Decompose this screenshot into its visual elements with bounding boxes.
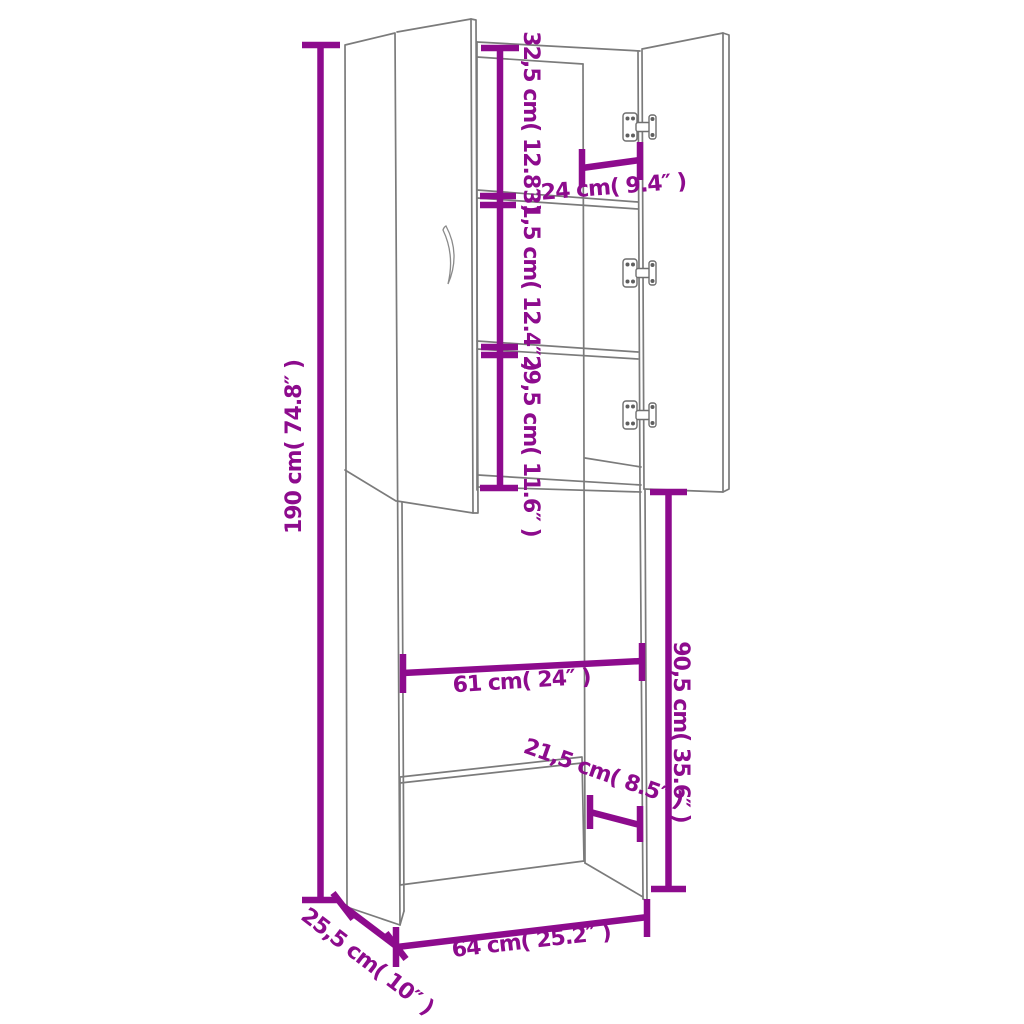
cabinet-drawing: 190 cm( 74.8″ ) 32,5 cm( 12.8″ ) 31,5 cm… — [0, 0, 1024, 1024]
shelf-spacing-dimension-line — [480, 48, 519, 488]
hinge-top-icon — [623, 113, 656, 141]
middle-shelf-section-label: 31,5 cm( 12.4″ ) — [518, 189, 543, 370]
door-handle — [443, 226, 454, 284]
overall-width-label: 64 cm( 25.2″ ) — [450, 920, 612, 963]
overall-height-label: 190 cm( 74.8″ ) — [282, 360, 307, 534]
plinth-offset-dimension-line — [590, 795, 640, 842]
dimension-labels: 190 cm( 74.8″ ) 32,5 cm( 12.8″ ) 31,5 cm… — [282, 31, 693, 1020]
plinth-panel — [400, 757, 584, 885]
dimension-diagram: 190 cm( 74.8″ ) 32,5 cm( 12.8″ ) 31,5 cm… — [0, 0, 1024, 1024]
top-shelf-section-label: 32,5 cm( 12.8″ ) — [518, 31, 543, 212]
left-door — [397, 19, 478, 513]
height-dimension-line — [302, 45, 340, 900]
plinth-offset-label: 21,5 cm( 8.5″ ) — [520, 734, 686, 813]
lower-shelf-section-label: 29,5 cm( 11.6″ ) — [518, 355, 543, 536]
left-side-panel — [345, 33, 404, 925]
